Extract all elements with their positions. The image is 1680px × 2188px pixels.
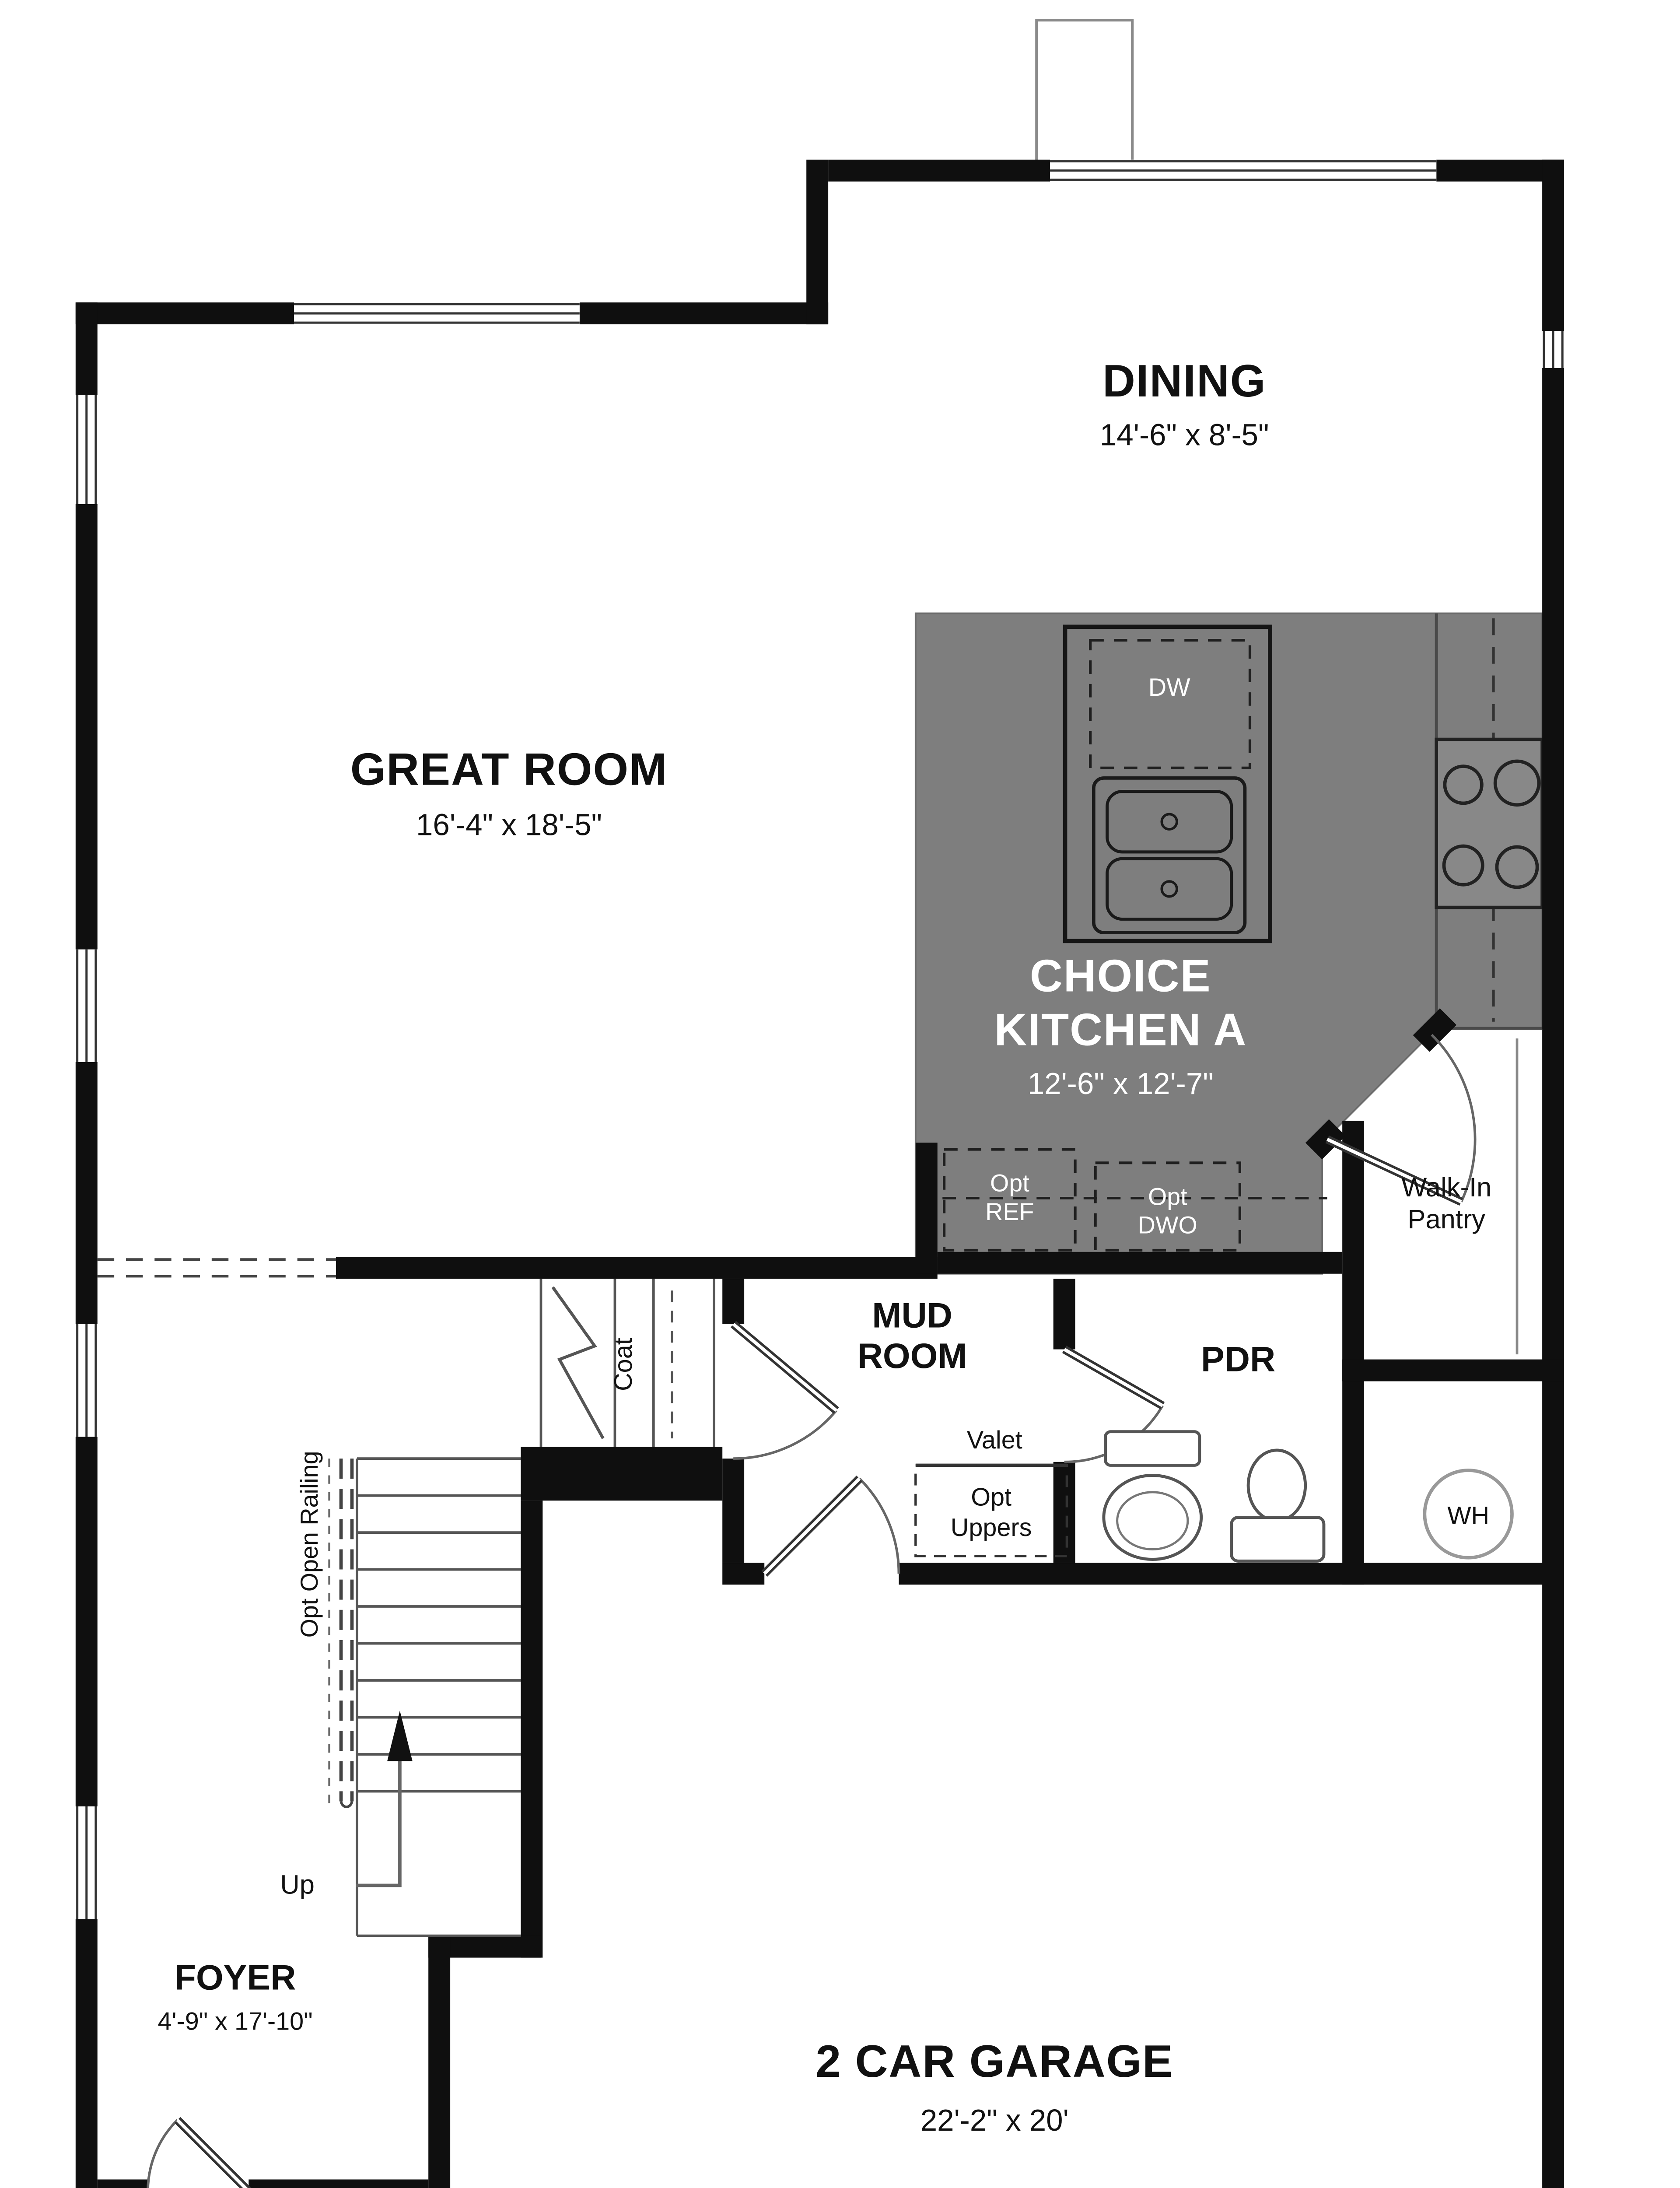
sink-vanity-icon <box>1232 1518 1324 1561</box>
window <box>76 395 98 504</box>
stair-treads <box>357 1459 521 1936</box>
water-heater-label: WH <box>1447 1502 1489 1530</box>
wall-segment <box>1342 1121 1364 1381</box>
wall-segment <box>722 1279 744 1324</box>
wall-segment <box>938 1252 1342 1274</box>
floor-plan-page: DINING 14'-6" x 8'-5" GREAT ROOM 16'-4" … <box>0 0 1680 2188</box>
pantry-label-line2: Pantry <box>1407 1204 1485 1234</box>
wall-segment <box>806 160 828 324</box>
window <box>76 1806 98 1919</box>
island-sink <box>1094 778 1245 933</box>
wall-segment <box>98 2179 148 2188</box>
wall-segment <box>899 1563 1564 1585</box>
foyer-dims: 4'-9" x 17'-10" <box>158 2008 313 2036</box>
great-room-label: GREAT ROOM <box>350 743 668 794</box>
window <box>76 1324 98 1437</box>
dining-dims: 14'-6" x 8'-5" <box>1100 418 1269 452</box>
wall-segment <box>1053 1462 1075 1563</box>
wall-segment <box>521 1447 722 1501</box>
opt-window-bump <box>1036 20 1132 166</box>
wall-segment <box>428 1936 450 2188</box>
garage-dims: 22'-2" x 20' <box>920 2103 1069 2137</box>
wall-segment <box>76 1919 98 2188</box>
wall-segment <box>76 504 98 950</box>
wall-segment <box>916 1143 938 1274</box>
window <box>1050 160 1436 182</box>
wall-segment <box>580 302 828 324</box>
wall-segment <box>336 1257 938 1279</box>
powder-room-fixtures <box>1104 1432 1324 1561</box>
up-arrow-line <box>356 1751 400 1885</box>
dishwasher-label: DW <box>1148 673 1191 701</box>
kitchen-label-line2: KITCHEN A <box>994 1004 1247 1055</box>
coat-label: Coat <box>609 1338 637 1391</box>
wall-segment <box>1053 1279 1075 1349</box>
wall-segment <box>1542 368 1564 2188</box>
wall-segment <box>76 1062 98 1324</box>
valet-label: Valet <box>967 1426 1022 1454</box>
foyer-label: FOYER <box>175 1958 296 1998</box>
opt-open-railing-label: Opt Open Railing <box>296 1451 323 1637</box>
wall-segment <box>828 160 1050 182</box>
mud-room-label-line2: ROOM <box>857 1336 967 1376</box>
kitchen-dims: 12'-6" x 12'-7" <box>1028 1066 1214 1101</box>
opt-uppers-label-line1: Opt <box>971 1483 1011 1511</box>
pantry-label-line1: Walk-In <box>1401 1172 1491 1203</box>
open-ceiling-dashed <box>98 1259 336 1276</box>
wall-segment <box>1342 1360 1564 1382</box>
wall-segment <box>76 1437 98 1806</box>
up-label: Up <box>280 1870 315 1900</box>
wall-segment <box>1342 1381 1364 1585</box>
window <box>294 302 580 324</box>
sink-drain-icon <box>1162 814 1177 829</box>
garage-entry-door <box>764 1479 899 1574</box>
pdr-label: PDR <box>1201 1339 1275 1379</box>
railing-cap <box>341 1801 352 1807</box>
opt-dwo-label-line2: DWO <box>1138 1212 1197 1239</box>
great-room-dims: 16'-4" x 18'-5" <box>416 807 602 842</box>
opt-ref-label-line1: Opt <box>990 1170 1029 1197</box>
stairs <box>329 1459 521 1936</box>
garage-label: 2 CAR GARAGE <box>815 2036 1173 2086</box>
wall-segment <box>722 1459 744 1563</box>
bifold-door-icon <box>553 1287 603 1438</box>
wall-segment <box>521 1501 542 1957</box>
sink-drain-icon <box>1162 881 1177 897</box>
opt-dwo-label-line1: Opt <box>1148 1183 1187 1210</box>
floor-plan-svg: DINING 14'-6" x 8'-5" GREAT ROOM 16'-4" … <box>0 0 1680 2188</box>
wall-segment <box>1542 160 1564 331</box>
opt-uppers-label-line2: Uppers <box>951 1514 1032 1542</box>
opt-ref-label-line2: REF <box>985 1198 1034 1225</box>
toilet-tank-icon <box>1106 1432 1200 1466</box>
sink-bowl-icon <box>1248 1450 1305 1521</box>
dining-label: DINING <box>1102 355 1266 406</box>
mud-room-label-line1: MUD <box>872 1296 952 1336</box>
mudroom-door <box>733 1324 836 1459</box>
wall-segment <box>76 302 98 395</box>
wall-segment <box>722 1563 764 1585</box>
wall-segment <box>248 2179 428 2188</box>
window <box>1542 331 1564 368</box>
wall-segment <box>76 302 294 324</box>
kitchen-label-line1: CHOICE <box>1030 950 1211 1001</box>
window <box>76 950 98 1062</box>
front-door <box>148 2120 248 2188</box>
